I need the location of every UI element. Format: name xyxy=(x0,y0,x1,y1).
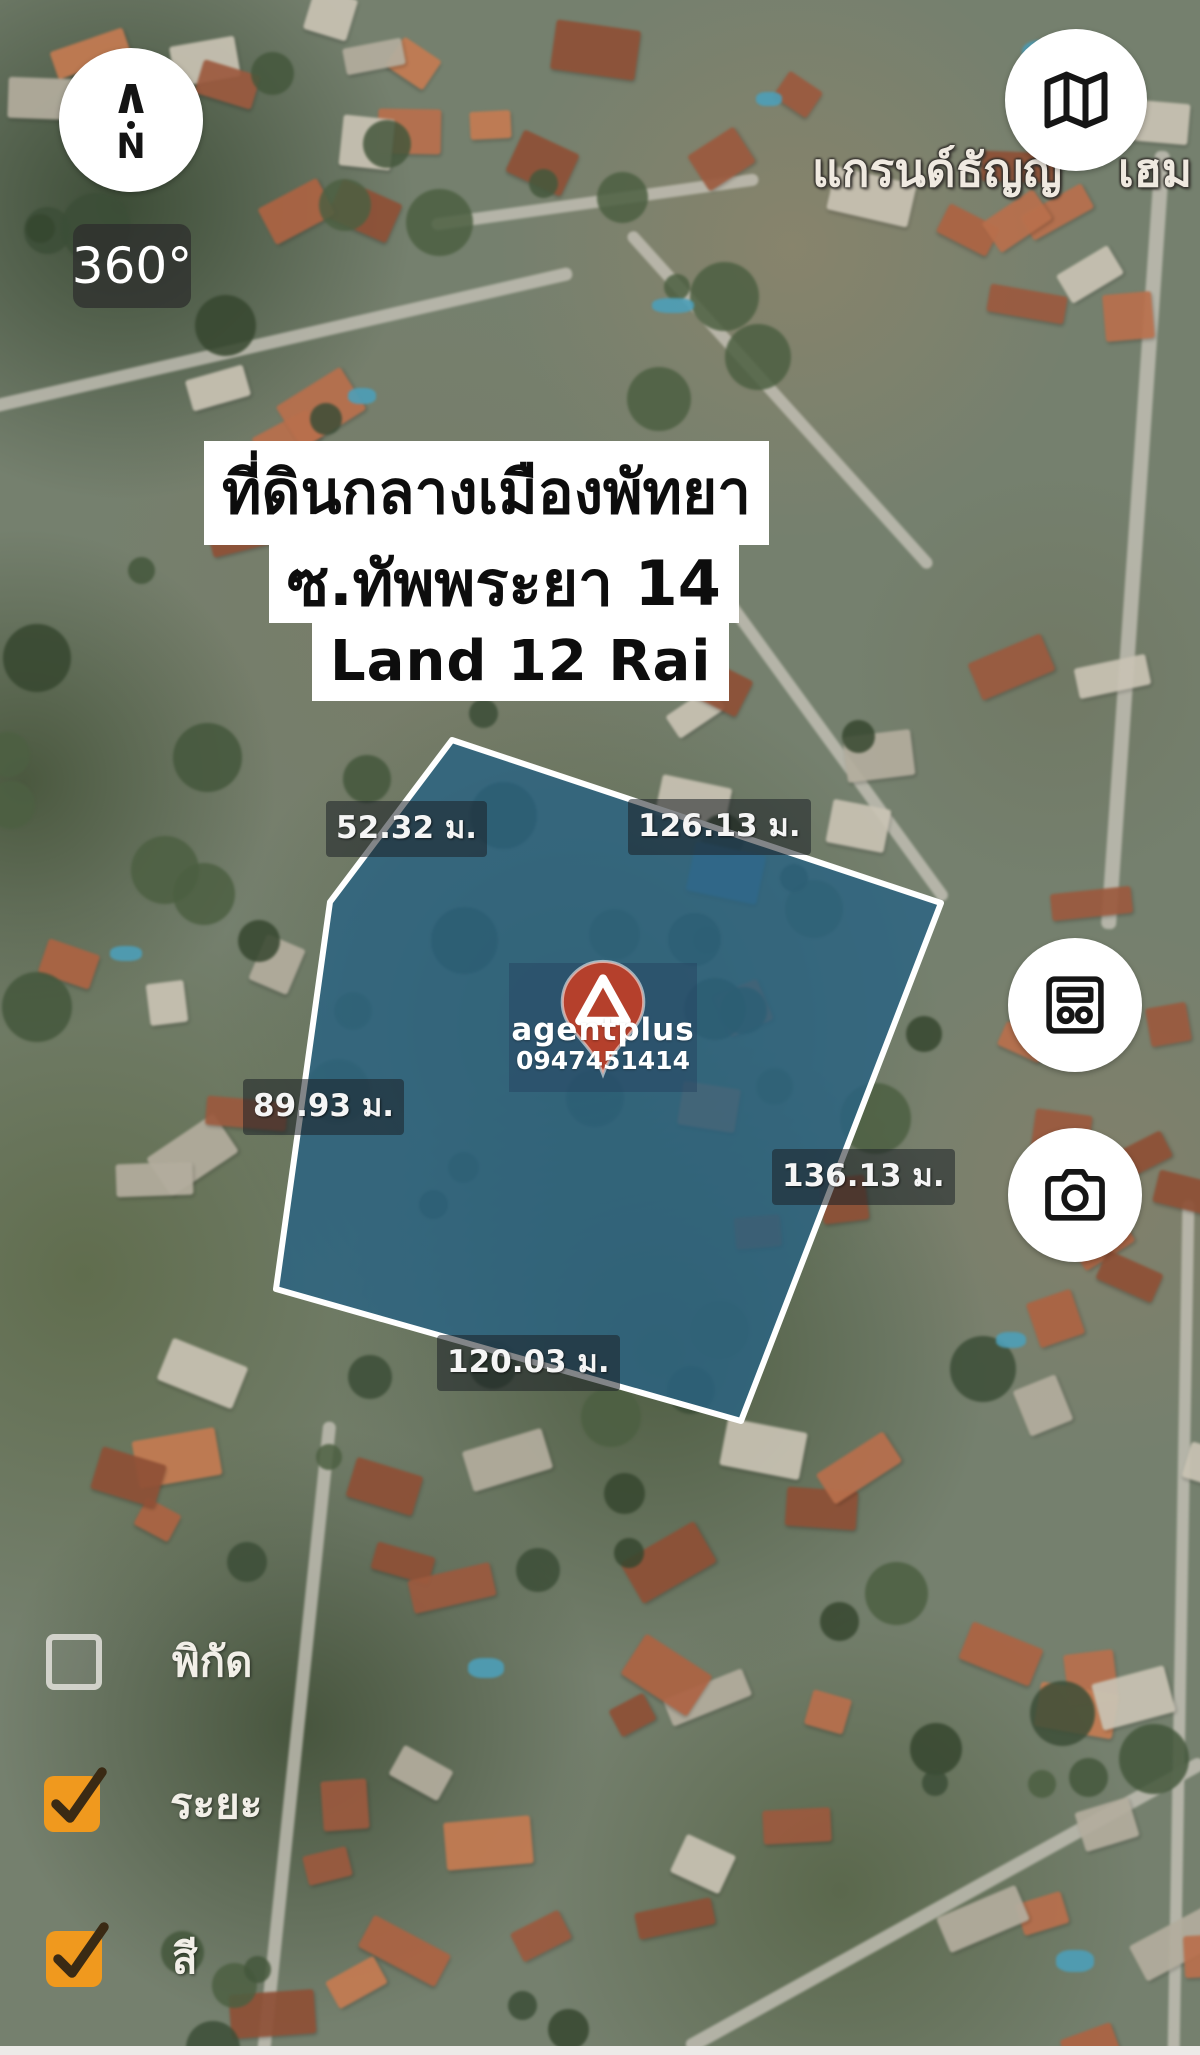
map-view-button[interactable] xyxy=(1005,29,1147,171)
measurement-label: 120.03 ม. xyxy=(437,1335,620,1391)
checkbox-distance[interactable] xyxy=(44,1776,100,1832)
camera-icon xyxy=(1039,1159,1111,1231)
title-line-2: ซ.ทัพพระยา 14 xyxy=(269,545,739,623)
details-card-button[interactable] xyxy=(1008,938,1142,1072)
title-line-3: Land 12 Rai xyxy=(312,623,729,701)
north-arrow-icon: ∧ xyxy=(111,75,152,118)
check-icon xyxy=(44,1766,110,1832)
measurement-label: 52.32 ม. xyxy=(326,801,487,857)
checkbox-coordinates[interactable] xyxy=(46,1634,102,1690)
measurement-label: 89.93 ม. xyxy=(243,1079,404,1135)
measurement-label: 126.13 ม. xyxy=(628,799,811,855)
check-icon xyxy=(46,1921,112,1987)
rotation-360-button[interactable]: 360° xyxy=(73,224,191,308)
satellite-map-canvas[interactable]: 52.32 ม. 126.13 ม. 89.93 ม. 136.13 ม. 12… xyxy=(0,0,1200,2055)
legend-label: สี xyxy=(172,1926,198,1992)
legend-row-color[interactable]: สี xyxy=(46,1926,198,1992)
bottom-sheet-edge xyxy=(0,2046,1200,2055)
legend-label: ระยะ xyxy=(170,1771,262,1837)
legend-row-coordinates[interactable]: พิกัด xyxy=(46,1629,252,1695)
ballot-card-icon xyxy=(1038,968,1112,1042)
watermark-brand: agentplus xyxy=(509,1012,697,1048)
legend-row-distance[interactable]: ระยะ xyxy=(44,1771,262,1837)
compass-button[interactable]: ∧ N xyxy=(59,48,203,192)
checkbox-color[interactable] xyxy=(46,1931,102,1987)
folded-map-icon xyxy=(1038,62,1114,138)
camera-button[interactable] xyxy=(1008,1128,1142,1262)
legend-label: พิกัด xyxy=(172,1629,252,1695)
watermark-phone: 0947451414 xyxy=(509,1046,697,1075)
title-line-1: ที่ดินกลางเมืองพัทยา xyxy=(204,441,769,545)
measurement-label: 136.13 ม. xyxy=(772,1149,955,1205)
compass-north-label: N xyxy=(116,130,145,165)
